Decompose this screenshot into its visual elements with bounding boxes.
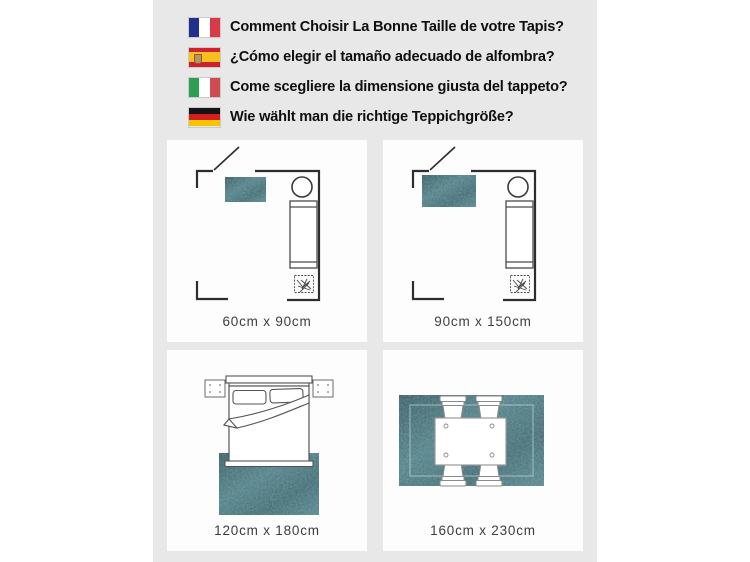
spain-flag-icon bbox=[189, 48, 220, 67]
size-label: 160cm x 230cm bbox=[383, 523, 583, 538]
room-floorplan-diagram bbox=[383, 140, 583, 308]
infographic-canvas: Comment Choisir La Bonne Taille de votre… bbox=[153, 0, 597, 562]
size-label: 120cm x 180cm bbox=[167, 523, 367, 538]
france-flag-icon bbox=[189, 18, 220, 37]
header-row-french: Comment Choisir La Bonne Taille de votre… bbox=[189, 17, 568, 37]
panel-rug-160x230: 160cm x 230cm bbox=[383, 350, 583, 551]
nightstand-right bbox=[313, 380, 333, 397]
header-row-german: Wie wählt man die richtige Teppichgröße? bbox=[189, 107, 568, 127]
headboard bbox=[226, 376, 312, 386]
header-text-german: Wie wählt man die richtige Teppichgröße? bbox=[230, 109, 514, 125]
dining-diagram bbox=[383, 350, 583, 518]
door-leaf bbox=[214, 147, 239, 170]
side-table bbox=[292, 177, 312, 197]
room-floorplan-diagram bbox=[167, 140, 367, 308]
italy-flag-icon bbox=[189, 78, 220, 97]
size-label: 90cm x 150cm bbox=[383, 314, 583, 329]
language-header: Comment Choisir La Bonne Taille de votre… bbox=[189, 17, 568, 137]
rug bbox=[225, 177, 266, 202]
spain-emblem-icon bbox=[194, 54, 202, 64]
panel-rug-90x150: 90cm x 150cm bbox=[383, 140, 583, 342]
rug bbox=[422, 175, 476, 207]
plant-icon bbox=[511, 276, 530, 293]
pillow-left bbox=[233, 391, 266, 405]
germany-flag-icon bbox=[189, 108, 220, 127]
side-table bbox=[508, 177, 528, 197]
header-row-italian: Come scegliere la dimensione giusta del … bbox=[189, 77, 568, 97]
nightstand-left bbox=[205, 380, 225, 397]
sofa bbox=[506, 201, 533, 268]
header-row-spanish: ¿Cómo elegir el tamaño adecuado de alfom… bbox=[189, 47, 568, 67]
bedroom-diagram bbox=[167, 350, 367, 518]
panel-rug-60x90: 60cm x 90cm bbox=[167, 140, 367, 342]
size-label: 60cm x 90cm bbox=[167, 314, 367, 329]
header-text-spanish: ¿Cómo elegir el tamaño adecuado de alfom… bbox=[230, 49, 555, 65]
sofa bbox=[290, 201, 317, 268]
panel-rug-120x180: 120cm x 180cm bbox=[167, 350, 367, 551]
door-leaf bbox=[430, 147, 455, 170]
header-text-italian: Come scegliere la dimensione giusta del … bbox=[230, 79, 568, 95]
footboard bbox=[225, 461, 313, 467]
header-text-french: Comment Choisir La Bonne Taille de votre… bbox=[230, 19, 564, 35]
plant-icon bbox=[295, 276, 314, 293]
